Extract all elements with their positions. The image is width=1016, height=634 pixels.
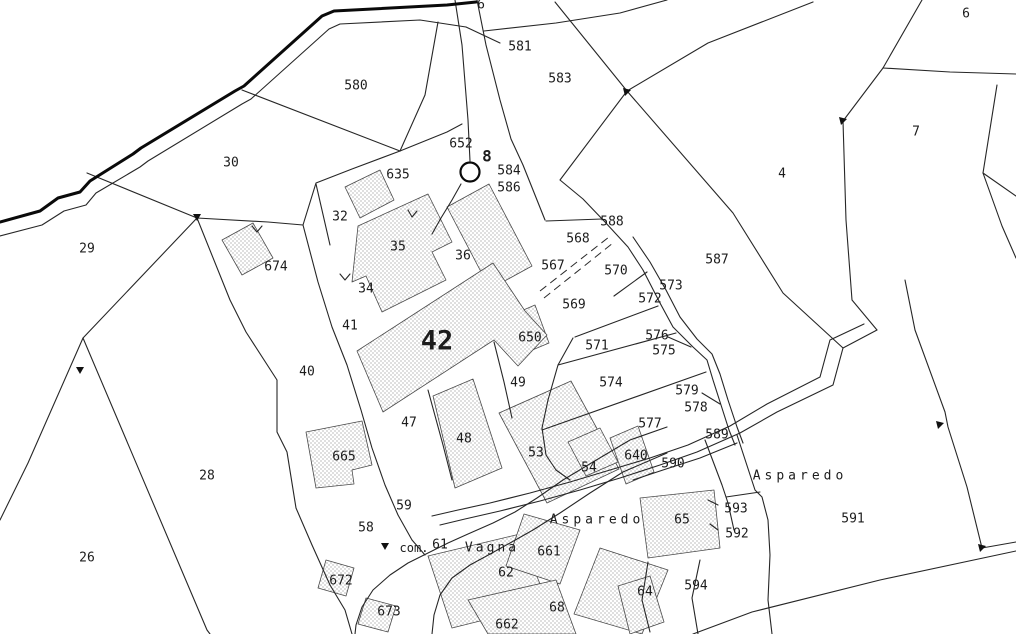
map-label-576-31: 576	[645, 329, 668, 344]
map-label-650-29: 650	[518, 331, 541, 346]
map-label-32-13: 32	[332, 210, 348, 225]
map-label-571-30: 571	[585, 339, 608, 354]
map-label-com-56: com.	[400, 541, 429, 555]
map-label-26-67: 26	[79, 551, 95, 566]
map-label-594-63: 594	[684, 579, 708, 594]
map-label-8-8: 8	[482, 147, 492, 166]
map-label-674-17: 674	[264, 260, 288, 275]
map-label-580-2: 580	[344, 79, 367, 94]
map-label-572-24: 572	[638, 292, 661, 307]
map-label-7-5: 7	[912, 125, 920, 140]
map-label-28-46: 28	[199, 469, 215, 484]
map-label-574-34: 574	[599, 376, 623, 391]
map-label-593-52: 593	[724, 502, 747, 517]
map-label-4-6: 4	[778, 167, 786, 182]
map-label-672-60: 672	[329, 574, 352, 589]
map-label-589-45: 589	[705, 428, 728, 443]
map-label-30-11: 30	[223, 156, 239, 171]
map-label-Vagna-58: Vagna	[465, 541, 519, 556]
map-label-592-54: 592	[725, 527, 748, 542]
map-label-578-37: 578	[684, 401, 707, 416]
map-label-577-39: 577	[638, 417, 661, 432]
map-label-34-25: 34	[358, 282, 374, 297]
map-label-568-15: 568	[566, 232, 589, 247]
map-label-661-59: 661	[537, 545, 560, 560]
map-label-29-16: 29	[79, 242, 95, 257]
map-label-586-10: 586	[497, 181, 520, 196]
map-label-35-18: 35	[390, 240, 406, 255]
map-label-575-32: 575	[652, 344, 675, 359]
map-label-640-44: 640	[624, 449, 647, 464]
map-label-652-7: 652	[449, 137, 472, 152]
map-label-49-35: 49	[510, 376, 526, 391]
map-label-53-42: 53	[528, 446, 544, 461]
map-label-569-26: 569	[562, 298, 585, 313]
map-label-54-43: 54	[581, 461, 597, 476]
map-label-6-4: 6	[962, 7, 970, 22]
map-label-584-9: 584	[497, 164, 521, 179]
map-label-581-1: 581	[508, 40, 531, 55]
map-label-6-0: 6	[477, 0, 485, 13]
map-label-573-23: 573	[659, 279, 682, 294]
map-label-62-61: 62	[498, 566, 514, 581]
map-label-570-21: 570	[604, 264, 627, 279]
map-label-41-27: 41	[342, 319, 358, 334]
map-label-567-20: 567	[541, 259, 564, 274]
map-label-59-49: 59	[396, 499, 412, 514]
well-circle-symbol	[461, 163, 480, 182]
map-label-635-12: 635	[386, 168, 409, 183]
cadastral-map[interactable]: 6581580583674652858458630635325885682967…	[0, 0, 1016, 634]
map-label-48-41: 48	[456, 432, 472, 447]
map-label-588-14: 588	[600, 215, 623, 230]
map-label-64-62: 64	[637, 585, 653, 600]
map-label-Asparedo-55: Asparedo	[550, 513, 645, 528]
map-label-590-47: 590	[661, 457, 684, 472]
road-edge-thick	[0, 2, 476, 222]
map-label-583-3: 583	[548, 72, 571, 87]
map-label-662-66: 662	[495, 618, 518, 633]
map-label-673-64: 673	[377, 605, 400, 620]
map-label-47-38: 47	[401, 416, 417, 431]
map-label-40-33: 40	[299, 365, 315, 380]
map-label-61-57: 61	[432, 538, 448, 553]
map-label-65-50: 65	[674, 513, 690, 528]
map-label-587-22: 587	[705, 253, 728, 268]
map-label-579-36: 579	[675, 384, 698, 399]
map-label-591-51: 591	[841, 512, 864, 527]
map-label-68-65: 68	[549, 601, 565, 616]
map-label-42-28: 42	[421, 325, 454, 356]
map-label-36-19: 36	[455, 249, 471, 264]
map-label-Asparedo-48: Asparedo	[753, 469, 848, 484]
map-label-665-40: 665	[332, 450, 355, 465]
map-label-58-53: 58	[358, 521, 374, 536]
